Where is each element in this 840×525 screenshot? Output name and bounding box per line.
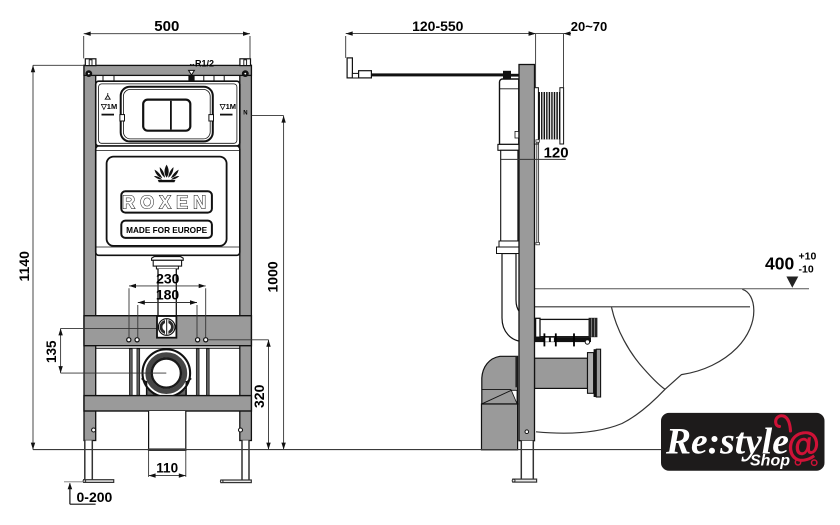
svg-text:-10: -10 xyxy=(799,264,814,276)
svg-text:500: 500 xyxy=(154,18,179,35)
svg-text:135: 135 xyxy=(44,340,59,363)
svg-text:20~70: 20~70 xyxy=(571,19,608,34)
svg-text:ROXEN: ROXEN xyxy=(122,192,211,212)
svg-text:▽1M: ▽1M xyxy=(219,102,236,111)
svg-text:R1/2: R1/2 xyxy=(195,59,214,69)
svg-text:MADE FOR EUROPE: MADE FOR EUROPE xyxy=(126,225,207,235)
svg-text:1000: 1000 xyxy=(265,261,281,292)
svg-text:110: 110 xyxy=(156,460,178,475)
svg-text:▽1M: ▽1M xyxy=(100,102,117,111)
svg-text:230: 230 xyxy=(156,270,180,286)
svg-text:Shop: Shop xyxy=(750,453,790,470)
svg-text:+10: +10 xyxy=(799,251,817,263)
svg-text:400: 400 xyxy=(765,254,794,274)
svg-text:1140: 1140 xyxy=(16,251,32,282)
svg-text:320: 320 xyxy=(251,384,267,408)
svg-text:0-200: 0-200 xyxy=(77,489,113,505)
svg-text:N: N xyxy=(243,110,247,116)
svg-text:180: 180 xyxy=(156,287,180,303)
svg-text:120-550: 120-550 xyxy=(412,18,464,34)
